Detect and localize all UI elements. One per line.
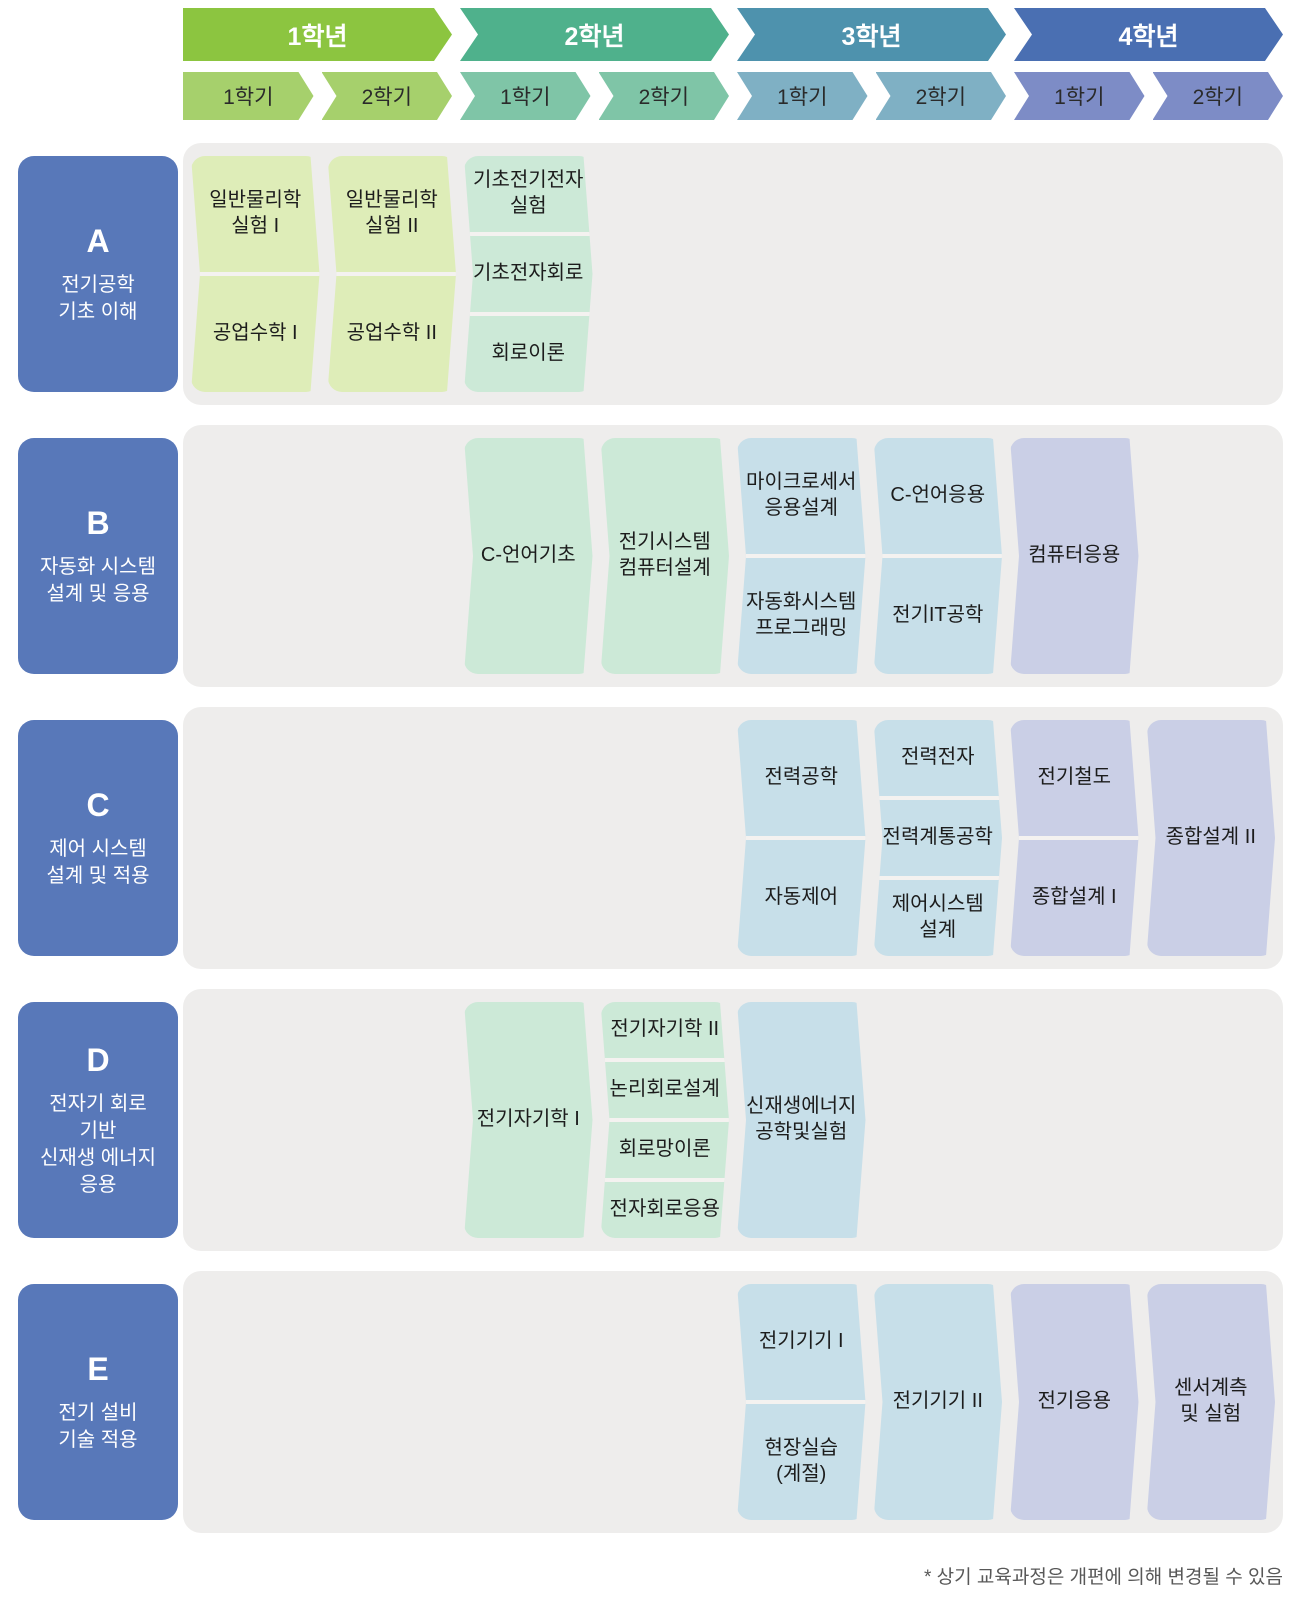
semesters-row: 1학기2학기1학기2학기1학기2학기1학기2학기 [183,72,1283,120]
row-letter: C [86,787,109,824]
row-letter: D [86,1042,109,1079]
course-card: 제어시스템 설계 [874,876,1003,956]
course-card: 센서계측 및 실험 [1147,1284,1276,1520]
row-band-c: 전력공학자동제어전력전자전력계통공학제어시스템 설계전기철도종합설계 I종합설계… [183,707,1283,969]
semester-column-4 [601,1284,730,1520]
semester-column-8: 센서계측 및 실험 [1147,1284,1276,1520]
course-group: 종합설계 II [1147,720,1276,956]
row-letter: A [86,223,109,260]
semester-arrow-3: 1학기 [460,72,591,120]
row-label-c: C제어 시스템 설계 및 적용 [18,720,178,956]
semester-column-8 [1147,438,1276,674]
semester-arrow-6: 2학기 [876,72,1007,120]
semester-column-6: C-언어응용전기IT공학 [874,438,1003,674]
course-group: 전력전자전력계통공학제어시스템 설계 [874,720,1003,956]
row-title: 전기 설비 기술 적용 [58,1400,137,1454]
semester-column-6: 전력전자전력계통공학제어시스템 설계 [874,720,1003,956]
course-card: 전력공학 [737,720,866,836]
course-card: 회로망이론 [601,1118,730,1178]
course-card: 회로이론 [464,312,593,392]
course-card: 전기기기 I [737,1284,866,1400]
semester-arrow-5: 1학기 [737,72,868,120]
semester-column-4: 전기자기학 II논리회로설계회로망이론전자회로응용 [601,1002,730,1238]
curriculum-diagram: { "header": { "years": [ {"label": "1학년"… [0,0,1300,1600]
course-card: 전력계통공학 [874,796,1003,876]
course-card: 기초전자회로 [464,232,593,312]
semester-column-1: 일반물리학 실험 I공업수학 I [191,156,320,392]
course-group: 컴퓨터응용 [1010,438,1139,674]
semester-column-2 [328,438,457,674]
row-letter: E [87,1351,108,1388]
semester-column-5: 신재생에너지 공학및실험 [737,1002,866,1238]
year-arrow-3: 3학년 [737,8,1006,61]
course-card: 전기자기학 I [464,1002,593,1238]
course-card: 전기기기 II [874,1284,1003,1520]
row-title: 제어 시스템 설계 및 적용 [46,836,149,890]
row-label-d: D전자기 회로 기반 신재생 에너지 응용 [18,1002,178,1238]
semester-column-2 [328,720,457,956]
row-block-b: B자동화 시스템 설계 및 응용C-언어기초전기시스템 컴퓨터설계마이크로세서 … [0,425,1300,687]
semester-column-3 [464,720,593,956]
semester-column-1 [191,1002,320,1238]
row-title: 전기공학 기초 이해 [58,272,137,326]
row-label-b: B자동화 시스템 설계 및 응용 [18,438,178,674]
course-card: 종합설계 I [1010,836,1139,956]
course-group: 전기기기 I현장실습 (계절) [737,1284,866,1520]
semester-arrow-1: 1학기 [183,72,314,120]
semester-column-8: 종합설계 II [1147,720,1276,956]
course-group: 전기응용 [1010,1284,1139,1520]
course-card: 컴퓨터응용 [1010,438,1139,674]
semester-column-8 [1147,1002,1276,1238]
course-card: 전자회로응용 [601,1178,730,1238]
course-card: 마이크로세서 응용설계 [737,438,866,554]
course-card: 공업수학 II [328,272,457,392]
row-block-c: C제어 시스템 설계 및 적용전력공학자동제어전력전자전력계통공학제어시스템 설… [0,707,1300,969]
course-card: 기초전기전자 실험 [464,156,593,232]
semester-arrow-8: 2학기 [1153,72,1284,120]
semester-column-6 [874,1002,1003,1238]
course-card: 전기자기학 II [601,1002,730,1058]
course-group: C-언어기초 [464,438,593,674]
semester-column-4 [601,720,730,956]
semester-column-5: 마이크로세서 응용설계자동화시스템 프로그래밍 [737,438,866,674]
semester-column-6: 전기기기 II [874,1284,1003,1520]
row-band-e: 전기기기 I현장실습 (계절)전기기기 II전기응용센서계측 및 실험 [183,1271,1283,1533]
semester-column-7: 컴퓨터응용 [1010,438,1139,674]
semester-arrow-7: 1학기 [1014,72,1145,120]
semester-column-3: 기초전기전자 실험기초전자회로회로이론 [464,156,593,392]
course-card: 신재생에너지 공학및실험 [737,1002,866,1238]
course-group: 전기자기학 II논리회로설계회로망이론전자회로응용 [601,1002,730,1238]
row-block-d: D전자기 회로 기반 신재생 에너지 응용전기자기학 I전기자기학 II논리회로… [0,989,1300,1251]
course-card: 전기IT공학 [874,554,1003,674]
course-card: C-언어응용 [874,438,1003,554]
footnote: * 상기 교육과정은 개편에 의해 변경될 수 있음 [924,1562,1283,1589]
course-card: 일반물리학 실험 II [328,156,457,272]
row-label-e: E전기 설비 기술 적용 [18,1284,178,1520]
course-group: 전기자기학 I [464,1002,593,1238]
row-label-a: A전기공학 기초 이해 [18,156,178,392]
course-card: C-언어기초 [464,438,593,674]
course-card: 자동화시스템 프로그래밍 [737,554,866,674]
course-group: 신재생에너지 공학및실험 [737,1002,866,1238]
semester-column-7 [1010,1002,1139,1238]
row-title: 자동화 시스템 설계 및 응용 [40,554,156,608]
course-card: 논리회로설계 [601,1058,730,1118]
course-card: 전기시스템 컴퓨터설계 [601,438,730,674]
course-group: 전기철도종합설계 I [1010,720,1139,956]
semester-column-2: 일반물리학 실험 II공업수학 II [328,156,457,392]
years-row: 1학년2학년3학년4학년 [183,8,1283,61]
semester-column-7 [1010,156,1139,392]
row-title: 전자기 회로 기반 신재생 에너지 응용 [40,1091,156,1199]
course-group: 일반물리학 실험 II공업수학 II [328,156,457,392]
course-card: 전기응용 [1010,1284,1139,1520]
row-block-e: E전기 설비 기술 적용전기기기 I현장실습 (계절)전기기기 II전기응용센서… [0,1271,1300,1533]
course-card: 자동제어 [737,836,866,956]
semester-column-1 [191,720,320,956]
course-group: C-언어응용전기IT공학 [874,438,1003,674]
semester-column-3: C-언어기초 [464,438,593,674]
course-group: 전력공학자동제어 [737,720,866,956]
semester-column-5 [737,156,866,392]
year-arrow-1: 1학년 [183,8,452,61]
semester-column-3: 전기자기학 I [464,1002,593,1238]
semester-column-5: 전기기기 I현장실습 (계절) [737,1284,866,1520]
semester-column-6 [874,156,1003,392]
course-card: 공업수학 I [191,272,320,392]
semester-column-1 [191,1284,320,1520]
course-group: 마이크로세서 응용설계자동화시스템 프로그래밍 [737,438,866,674]
course-group: 전기기기 II [874,1284,1003,1520]
course-card: 종합설계 II [1147,720,1276,956]
course-card: 전력전자 [874,720,1003,796]
year-arrow-4: 4학년 [1014,8,1283,61]
semester-column-4 [601,156,730,392]
semester-column-7: 전기응용 [1010,1284,1139,1520]
semester-column-5: 전력공학자동제어 [737,720,866,956]
course-group: 전기시스템 컴퓨터설계 [601,438,730,674]
row-band-d: 전기자기학 I전기자기학 II논리회로설계회로망이론전자회로응용신재생에너지 공… [183,989,1283,1251]
course-group: 센서계측 및 실험 [1147,1284,1276,1520]
year-arrow-2: 2학년 [460,8,729,61]
course-card: 현장실습 (계절) [737,1400,866,1520]
semester-column-3 [464,1284,593,1520]
course-group: 일반물리학 실험 I공업수학 I [191,156,320,392]
row-block-a: A전기공학 기초 이해일반물리학 실험 I공업수학 I일반물리학 실험 II공업… [0,143,1300,405]
semester-arrow-2: 2학기 [322,72,453,120]
semester-arrow-4: 2학기 [599,72,730,120]
row-letter: B [86,505,109,542]
semester-column-7: 전기철도종합설계 I [1010,720,1139,956]
semester-column-2 [328,1284,457,1520]
course-card: 일반물리학 실험 I [191,156,320,272]
row-band-a: 일반물리학 실험 I공업수학 I일반물리학 실험 II공업수학 II기초전기전자… [183,143,1283,405]
row-band-b: C-언어기초전기시스템 컴퓨터설계마이크로세서 응용설계자동화시스템 프로그래밍… [183,425,1283,687]
semester-column-4: 전기시스템 컴퓨터설계 [601,438,730,674]
course-group: 기초전기전자 실험기초전자회로회로이론 [464,156,593,392]
semester-column-1 [191,438,320,674]
course-card: 전기철도 [1010,720,1139,836]
semester-column-2 [328,1002,457,1238]
semester-column-8 [1147,156,1276,392]
